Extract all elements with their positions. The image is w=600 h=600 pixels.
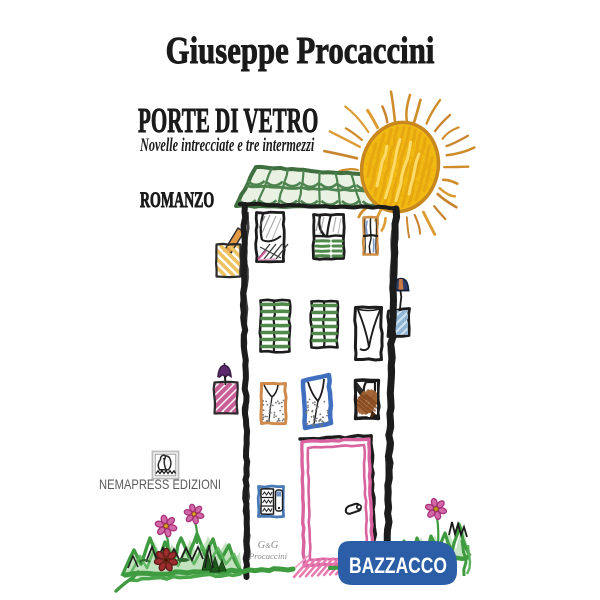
svg-text:G&G: G&G bbox=[258, 540, 279, 551]
svg-text:BAZZACCO: BAZZACCO bbox=[349, 553, 447, 578]
svg-text:Procaccini: Procaccini bbox=[248, 551, 288, 561]
